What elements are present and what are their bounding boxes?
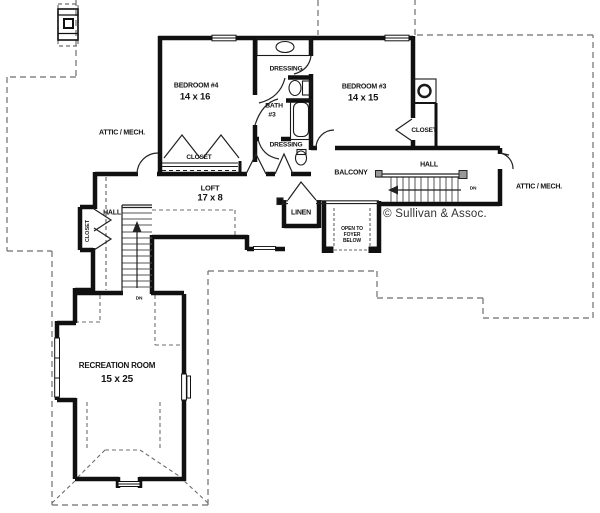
newel-post <box>376 171 383 178</box>
water-heater <box>413 79 436 103</box>
floor-plan-drawing <box>0 0 600 513</box>
label-attic-mech-right: ATTIC / MECH. <box>516 184 562 191</box>
label-recreation-name: RECREATION ROOM <box>79 362 155 370</box>
label-dn-right: DN <box>470 187 477 192</box>
label-bedroom3-dims: 14 x 15 <box>348 93 378 103</box>
label-bedroom4-dims: 14 x 16 <box>180 92 210 102</box>
recreation-east-window <box>182 374 191 400</box>
bedroom3-closet-door <box>396 119 412 141</box>
label-dressing-lower: DRESSING <box>270 142 303 149</box>
bathtub <box>291 100 312 140</box>
bedroom4-window <box>212 35 236 41</box>
label-bath3-name: BATH <box>265 104 283 111</box>
label-hall-right: HALL <box>420 161 438 168</box>
stair-arrow-up <box>133 221 142 232</box>
bedroom3-entry-door <box>316 130 334 148</box>
bay-window <box>118 482 140 487</box>
toilet-bath3 <box>289 81 311 96</box>
label-closet-bedroom3: CLOSET <box>411 128 436 135</box>
staircase-left <box>122 205 152 293</box>
linen-door <box>288 182 316 200</box>
vanity-sink <box>257 39 311 56</box>
label-closet-hall: CLOSET <box>85 220 91 242</box>
attic-left-door <box>137 153 158 174</box>
recreation-west-window <box>55 338 60 397</box>
newel-post <box>459 171 467 179</box>
label-bath3-number: #3 <box>268 112 275 119</box>
hall-attic-door <box>500 153 513 169</box>
bath-fixtures <box>162 39 436 171</box>
stair-arrow-down <box>388 186 398 195</box>
label-closet-bedroom4: CLOSET <box>186 154 211 161</box>
label-open-to-foyer: OPEN TO FOYER BELOW <box>341 226 363 244</box>
label-bedroom4-name: BEDROOM #4 <box>174 83 218 90</box>
toilet-dressing <box>296 150 307 166</box>
dressing-bath-door <box>259 78 285 103</box>
label-dressing-upper: DRESSING <box>270 67 303 74</box>
closet-rod <box>162 163 238 171</box>
staircase-right <box>376 171 468 203</box>
label-linen: LINEN <box>291 209 311 216</box>
label-loft-dims: 17 x 8 <box>197 193 222 203</box>
label-attic-mech-left: ATTIC / MECH. <box>99 129 145 136</box>
label-dn-left: DN <box>136 297 143 302</box>
label-loft-name: LOFT <box>201 184 220 192</box>
label-bedroom3-name: BEDROOM #3 <box>342 84 386 91</box>
label-recreation-dims: 15 x 25 <box>101 375 133 385</box>
label-balcony: BALCONY <box>334 169 367 176</box>
label-hall-left: HALL <box>103 209 121 216</box>
chimney <box>58 9 78 40</box>
floor-plan-page: BEDROOM #4 14 x 16 BEDROOM #3 14 x 15 DR… <box>0 0 600 513</box>
door-swings <box>94 56 513 250</box>
bedroom3-window <box>385 35 409 41</box>
copyright-text: © Sullivan & Assoc. <box>383 208 487 220</box>
